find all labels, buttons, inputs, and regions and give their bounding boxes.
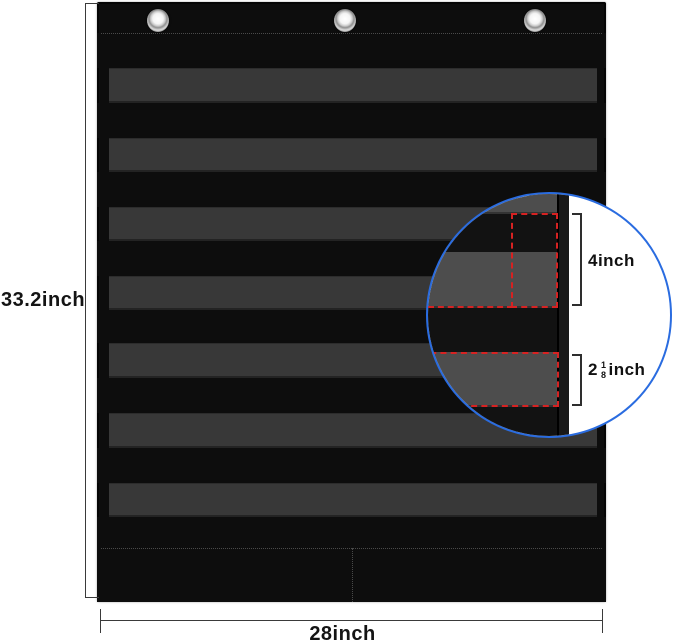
product-dimension-diagram: 33.2inch 28inch 4inch 218inch (0, 0, 679, 641)
bottom-pocket-divider-stitch (352, 548, 353, 602)
grommet-eyelet (524, 9, 546, 32)
height-dimension-top-tick (85, 3, 99, 4)
pocket-stripe (109, 68, 597, 103)
height-dimension-label: 33.2inch (1, 289, 85, 312)
pocket-strip-bracket (572, 354, 582, 406)
height-dimension-bottom-tick (85, 597, 99, 598)
pocket-row-gap (97, 103, 606, 138)
width-dimension-line (100, 620, 603, 621)
strip-fraction-numerator: 1 (601, 361, 607, 370)
strip-fraction-denominator: 8 (601, 371, 607, 380)
magnified-pocket-gap (428, 308, 557, 352)
pocket-row-bracket (572, 213, 582, 306)
width-dimension-right-tick (602, 609, 603, 633)
strip-whole-number: 2 (588, 360, 598, 380)
strip-fraction: 18 (601, 361, 607, 380)
pocket-stripe (109, 483, 597, 517)
pocket-row-highlight-baseline (428, 306, 513, 308)
pocket-strip-highlight-rect (426, 352, 559, 407)
pocket-strip-measure-label: 218inch (588, 360, 645, 380)
width-dimension-label: 28inch (85, 623, 600, 641)
pocket-stripe (109, 138, 597, 172)
magnified-pocket-gap (428, 407, 557, 438)
strip-unit: inch (608, 360, 645, 380)
pocket-row-gap (97, 33, 606, 68)
magnifier-circle: 4inch 218inch (426, 192, 672, 438)
pocket-row-measure-label: 4inch (588, 251, 635, 271)
hem-stitch-line (101, 33, 602, 34)
height-dimension-line (85, 3, 86, 598)
magnified-pocket-stripe (428, 194, 557, 214)
pocket-row-highlight-rect (511, 213, 558, 308)
pocket-row-gap (97, 448, 606, 483)
grommet-eyelet (334, 9, 356, 32)
grommet-eyelet (147, 9, 169, 32)
pocket-row-measure-text: 4inch (588, 251, 635, 271)
